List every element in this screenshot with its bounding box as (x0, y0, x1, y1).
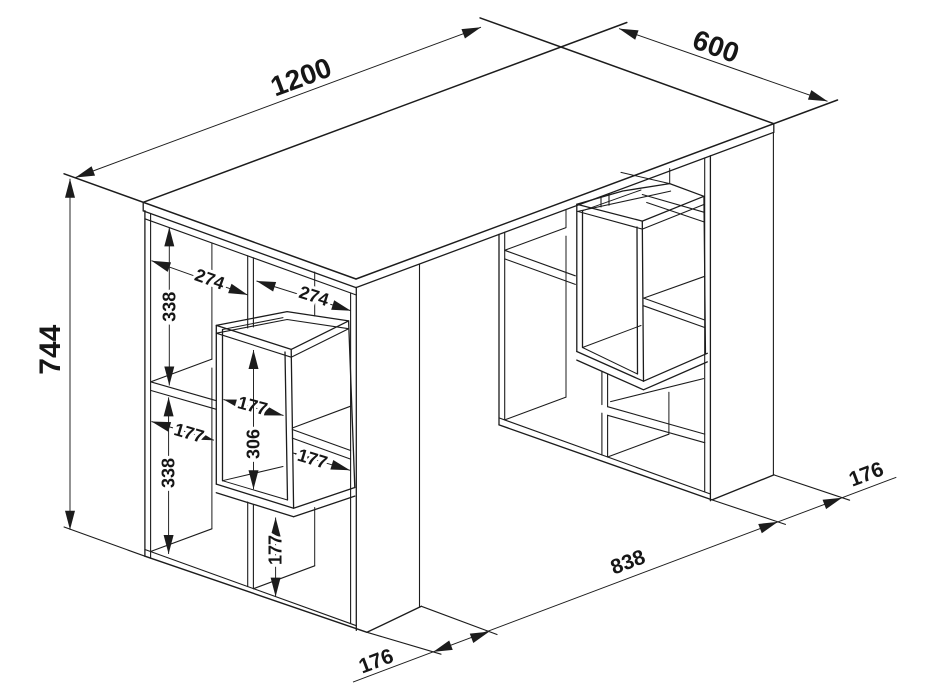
svg-text:744: 744 (34, 324, 67, 374)
svg-text:306: 306 (244, 429, 264, 459)
svg-text:177: 177 (266, 535, 286, 565)
svg-text:338: 338 (159, 458, 179, 488)
svg-text:338: 338 (159, 292, 179, 322)
